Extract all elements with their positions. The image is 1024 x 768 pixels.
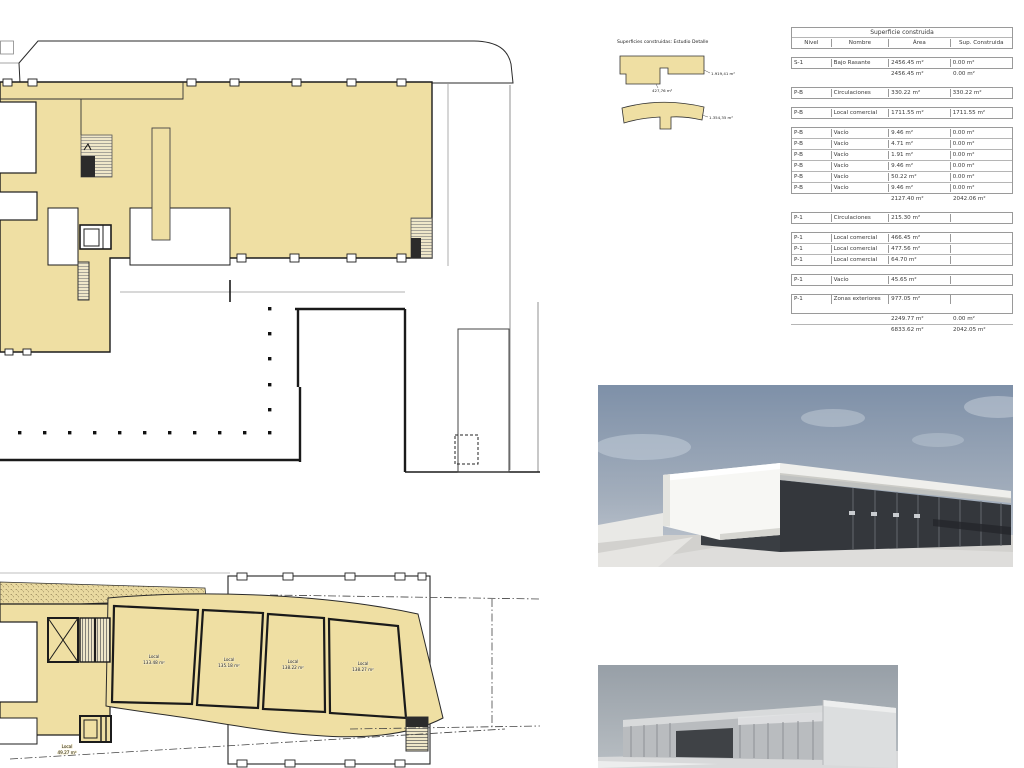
legend-label-1: 1.919,41 m² [711,71,735,76]
unit-label-area: 138.22 m² [282,665,304,670]
subtotal-row: 2456.45 m²0.00 m² [791,69,1013,79]
interior-core [152,128,170,240]
table-row: P-1Local comercial 466.45 m² [792,233,1012,243]
void-left-mid [0,192,37,220]
unit-label-area: 138.27 m² [352,667,374,672]
table-row: P-BVacío 9.46 m²0.00 m² [792,160,1012,171]
group-pb-circ: P-BCirculaciones 330.22 m²330.22 m² [791,87,1013,99]
stair-narrow [78,262,89,300]
area-legend: Superficies construidas: Estudio Detalle… [612,36,752,136]
canopy-outline [0,41,513,83]
void-court-a [48,208,78,265]
unit-label-name: Local [358,661,369,666]
table-row: P-1Vacío 45.65 m² [792,275,1012,285]
elevator-lower [80,716,111,742]
unit-label-name: Local [224,657,235,662]
subtotal-row: 2127.40 m²2042.06 m² [791,194,1013,204]
drawing-sheet: { "sheet": { "background": "#ffffff" }, … [0,0,1024,768]
legend-title: Superficies construidas: Estudio Detalle [617,39,708,45]
stair-core-lower [80,618,110,662]
table-row: P-BVacío 50.22 m²0.00 m² [792,171,1012,182]
unit-label-area: 49.27 m² [57,750,76,755]
group-s1: S-1Bajo Rasante 2456.45 m²0.00 m² [791,57,1013,69]
right-enclosure [455,329,509,472]
col-area: Área [889,39,950,48]
schedule-title: Superficie construida [870,29,934,37]
stair-upper-right [411,218,432,258]
table-row: P-1Circulaciones 215.30 m² [792,213,1012,223]
area-schedule: Superficie construida Nivel Nombre Área … [791,27,1013,335]
void-left-top [0,102,36,173]
render-2-image [598,665,898,768]
render-1-image [598,385,1013,567]
group-p1-vacio: P-1Vacío 45.65 m² [791,274,1013,286]
void-court-b [130,208,230,265]
render-perspective-large [598,385,1013,567]
unit-label-name: Local [62,744,73,749]
elevator-upper [80,225,111,249]
table-row: P-BVacío 9.46 m²0.00 m² [792,128,1012,138]
group-p1-zonas: P-1Zonas exteriores 977.05 m² [791,294,1013,314]
table-row: P-BLocal comercial 1711.55 m²1711.55 m² [792,108,1012,118]
table-row: P-BVacío 1.91 m²0.00 m² [792,149,1012,160]
table-row: P-1Local comercial 477.56 m² [792,243,1012,254]
table-row: P-1Local comercial 64.70 m² [792,254,1012,265]
unit-label-area: 133.48 m² [143,660,165,665]
table-row: P-BVacío 9.46 m²0.00 m² [792,182,1012,193]
unit-label-name: Local [149,654,160,659]
floor-plan-upper [0,10,545,480]
subtotal-row: 2249.77 m²0.00 m² [791,314,1013,324]
col-nombre: Nombre [832,39,889,48]
group-pb-vacio: P-BVacío 9.46 m²0.00 m² P-BVacío 4.71 m²… [791,127,1013,194]
group-p1-circ: P-1Circulaciones 215.30 m² [791,212,1013,224]
legend-shape-lower-plan [622,102,704,129]
floor-plan-lower: Local 133.48 m² Local 135.18 m² Local 13… [0,568,545,768]
table-row: P-BCirculaciones 330.22 m²330.22 m² [792,88,1012,98]
render-perspective-small [598,665,898,768]
table-row: P-1Zonas exteriores 977.05 m² [792,295,1012,313]
unit-label-area: 135.18 m² [218,663,240,668]
stair-upper-left [81,135,112,177]
legend-shape-upper-plan [620,56,704,84]
grand-total-row: 6833.62 m²2042.05 m² [791,324,1013,335]
legend-label-3: 1.354,35 m² [709,115,733,120]
legend-label-2: 427,76 m² [652,88,673,93]
table-row: P-BVacío 4.71 m²0.00 m² [792,138,1012,149]
elevator-shaft-x [48,618,78,662]
group-p1-local: P-1Local comercial 466.45 m² P-1Local co… [791,232,1013,266]
schedule-header: Superficie construida Nivel Nombre Área … [791,27,1013,49]
unit-label-name: Local [288,659,299,664]
col-sup: Sup. Construida [951,39,1012,48]
group-pb-local: P-BLocal comercial 1711.55 m²1711.55 m² [791,107,1013,119]
table-row: S-1Bajo Rasante 2456.45 m²0.00 m² [792,58,1012,68]
col-nivel: Nivel [792,39,832,48]
